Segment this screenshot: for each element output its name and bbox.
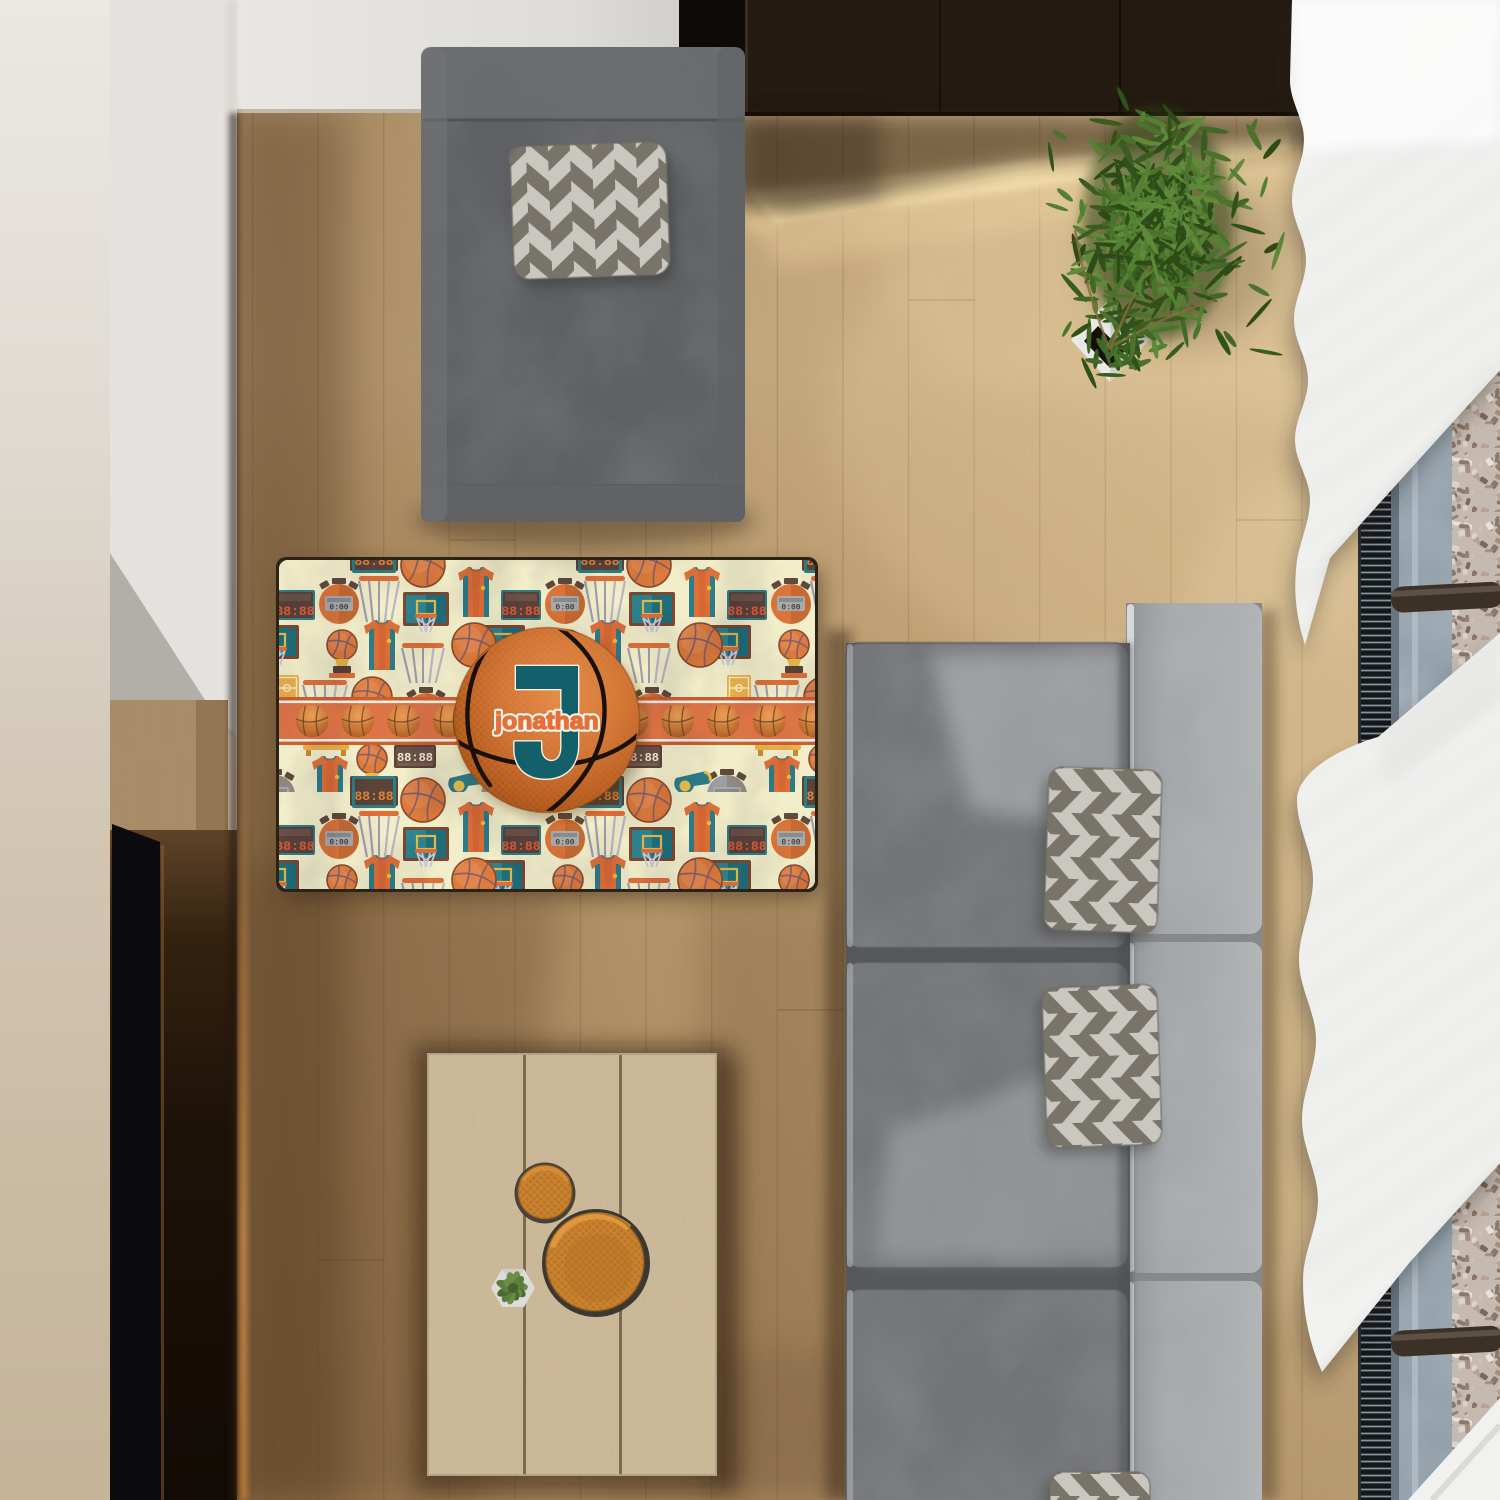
svg-text:jonathan: jonathan xyxy=(494,708,599,735)
